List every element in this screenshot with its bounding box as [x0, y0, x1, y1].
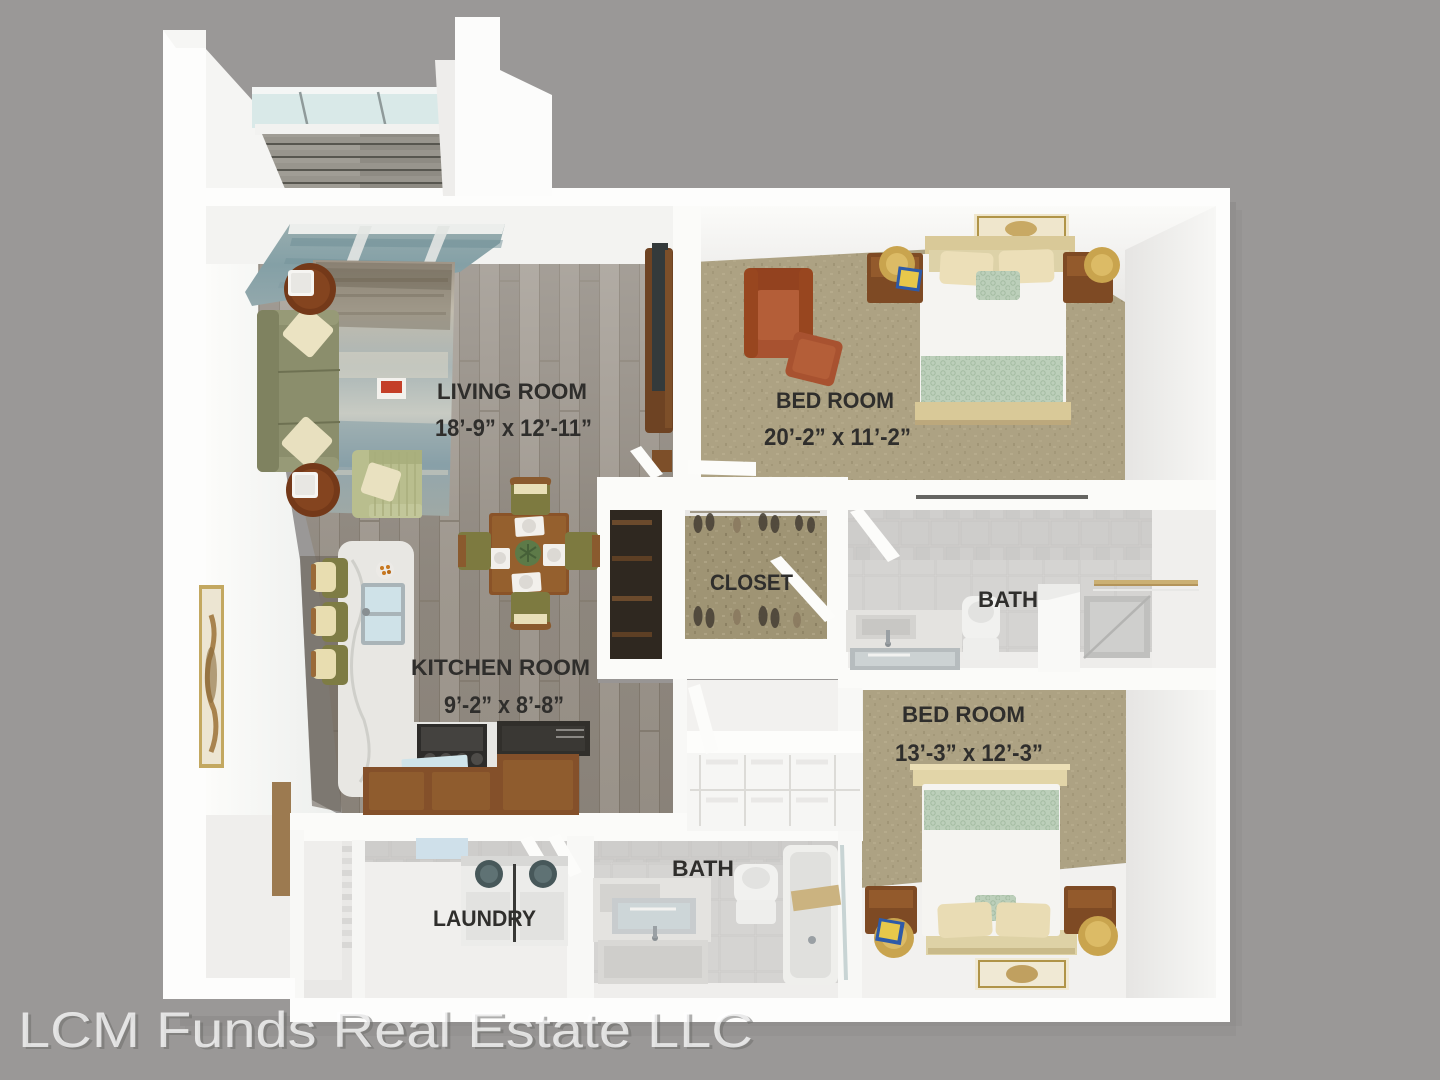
- svg-text:20’-2” x 11’-2”: 20’-2” x 11’-2”: [764, 424, 911, 451]
- svg-text:LCM Funds Real Estate LLC: LCM Funds Real Estate LLC: [18, 1002, 753, 1058]
- svg-text:BED ROOM: BED ROOM: [776, 388, 894, 413]
- svg-text:LIVING ROOM: LIVING ROOM: [437, 379, 587, 404]
- svg-text:LAUNDRY: LAUNDRY: [433, 906, 536, 931]
- svg-text:BATH: BATH: [672, 856, 734, 881]
- svg-text:BATH: BATH: [978, 587, 1038, 612]
- svg-text:13’-3” x 12’-3”: 13’-3” x 12’-3”: [895, 740, 1043, 767]
- svg-text:KITCHEN ROOM: KITCHEN ROOM: [411, 655, 590, 680]
- svg-text:BED ROOM: BED ROOM: [902, 702, 1025, 727]
- svg-text:18’-9” x 12’-11”: 18’-9” x 12’-11”: [435, 415, 592, 442]
- svg-text:CLOSET: CLOSET: [710, 570, 794, 595]
- svg-text:9’-2” x 8’-8”: 9’-2” x 8’-8”: [444, 692, 564, 719]
